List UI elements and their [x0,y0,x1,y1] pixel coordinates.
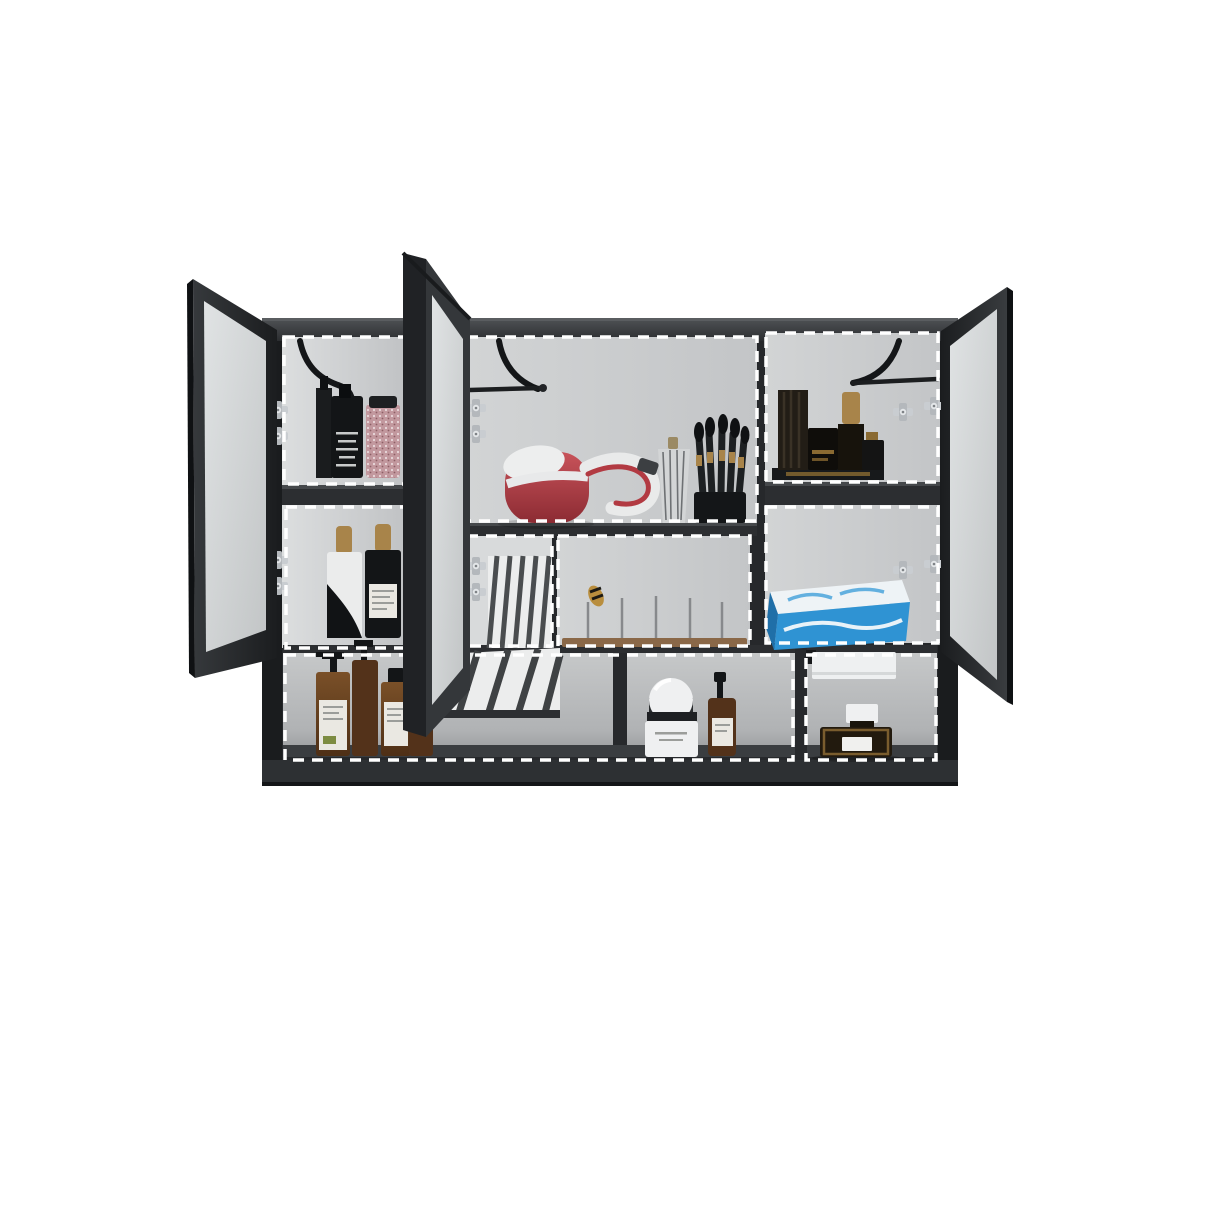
dropper-bottle-black-label [369,584,397,618]
serum-bottle-main-cap [339,384,351,398]
right-door-edge [1007,287,1013,705]
cream-jar [645,678,698,757]
brush-cup [694,492,746,523]
items-center-mid-narrow [488,556,552,648]
serum-bottle-small [316,388,332,478]
product-image-canvas [0,0,1214,1214]
dropper-cap-white-bottle [336,526,352,554]
small-bottle-cap [866,432,878,440]
left-mirror-door [187,279,277,678]
perfume-cap [846,704,878,723]
bath-salts-lid [369,396,397,408]
brush-head [718,414,728,434]
stay-rod-tip [539,384,547,392]
bottom-divider-1 [613,653,627,757]
towel-fold-line [812,672,896,675]
gold-text-row [786,472,870,476]
brush-head [705,417,715,437]
label-green-mark [323,736,336,744]
pump-head [354,640,373,647]
gold-label-line2 [812,458,828,461]
brush-head [694,422,704,442]
striped-bottle-stopper [668,437,678,449]
middle-mirror-door [403,253,470,737]
cabinet-top-highlight [262,318,958,321]
spray-nozzle [714,672,726,682]
brush-head [741,426,750,444]
gold-label-line [812,450,834,454]
striped-bottle [658,437,690,523]
middle-door-edge [403,253,426,737]
bath-salts-jar [366,404,400,478]
perfume-label [842,737,872,751]
pump-bottle-body [352,660,378,756]
small-black-bottle [862,440,884,470]
cream-jar-band [647,712,697,721]
black-bottle-gold-label [808,428,838,470]
mirror-cabinet-photo [0,0,1214,1214]
left-door-mirror [204,301,266,652]
gold-cap-tall [842,392,860,424]
brush-head [730,418,740,438]
right-door-mirror [950,309,997,680]
bottle-cap [388,668,404,684]
middle-door-mirror [432,295,463,705]
ridged-bottle-cluster [778,390,808,470]
cabinet-bottom-edge [262,782,958,786]
brush-set [694,414,750,523]
right-mirror-door [941,287,1013,705]
items-right-bottom [766,580,910,650]
spray-neck [717,682,723,700]
pump-stem [330,658,337,674]
gold-cap-bottle-body [838,424,864,470]
perfume-neck [850,721,874,728]
stay-rod-center [470,388,541,390]
dropper-cap-black-bottle [375,524,391,552]
serum-bottle-small-cap [320,376,328,390]
